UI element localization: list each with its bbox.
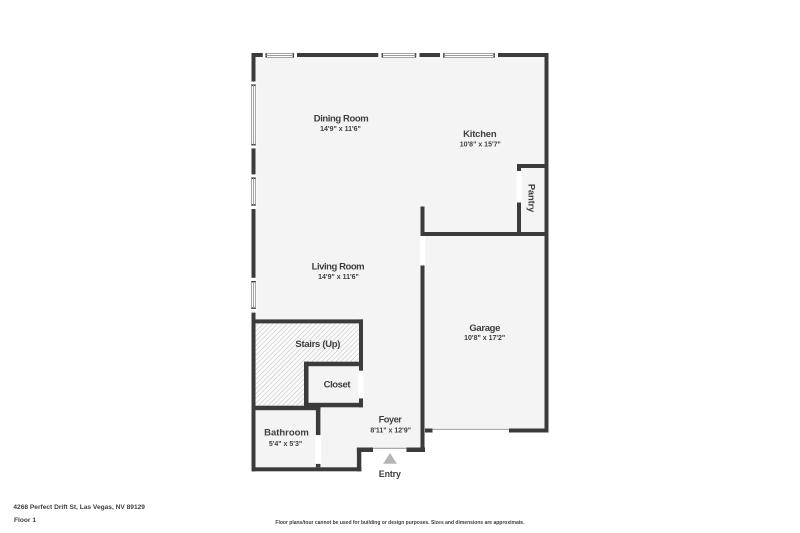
svg-text:10'8" x 17'2": 10'8" x 17'2" [464, 335, 505, 342]
svg-text:Dining Room: Dining Room [314, 113, 368, 124]
svg-text:Kitchen: Kitchen [463, 129, 497, 140]
svg-text:4268 Perfect Drift St, Las Veg: 4268 Perfect Drift St, Las Vegas, NV 891… [13, 504, 145, 511]
svg-text:14'9" x 11'6": 14'9" x 11'6" [318, 274, 359, 281]
svg-text:Foyer: Foyer [379, 415, 403, 425]
svg-text:Living Room: Living Room [312, 261, 365, 272]
svg-text:14'9" x 11'6": 14'9" x 11'6" [320, 126, 361, 133]
svg-text:Closet: Closet [324, 379, 352, 390]
svg-text:Floor 1: Floor 1 [14, 517, 36, 524]
svg-text:Bathroom: Bathroom [264, 427, 309, 438]
svg-text:5'4" x 5'3": 5'4" x 5'3" [269, 441, 302, 448]
svg-text:Stairs (Up): Stairs (Up) [295, 339, 340, 350]
svg-text:8'11" x 12'9": 8'11" x 12'9" [370, 427, 411, 434]
svg-text:Floor plans/tour cannot be use: Floor plans/tour cannot be used for buil… [275, 520, 525, 526]
svg-text:Entry: Entry [379, 469, 401, 479]
svg-text:10'8" x 15'7": 10'8" x 15'7" [460, 142, 501, 149]
svg-text:Garage: Garage [469, 323, 500, 334]
svg-text:Pantry: Pantry [526, 184, 536, 213]
